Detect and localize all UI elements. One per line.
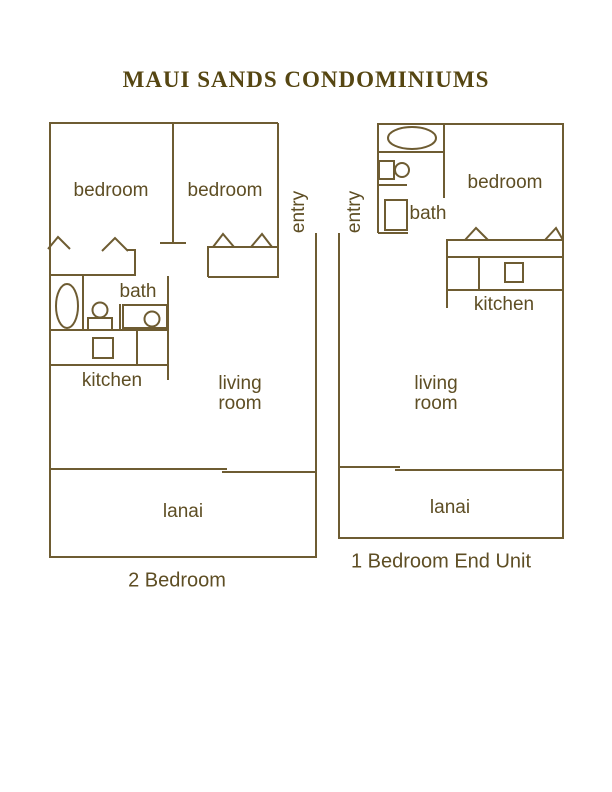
kitchen-sink-icon [93,338,113,358]
toilet-icon [88,303,112,331]
room-label-entry: entry [289,191,309,233]
bedroom-divider-wall [160,123,186,243]
bathtub-icon [56,284,78,328]
floorplan-page: MAUI SANDS CONDOMINIUMS [0,0,612,792]
room-label-lanai: lanai [163,502,203,522]
floorplan-drawing [0,0,612,792]
closet-door-icon [465,228,563,240]
room-label-living-room: living room [204,374,276,414]
room-label-kitchen: kitchen [474,295,534,315]
room-label-living-room: living room [400,374,472,414]
closet-left-walls [50,250,135,275]
kitchen-sink-icon [505,263,523,282]
unit-caption-2-bedroom: 2 Bedroom [128,570,226,593]
bathtub-icon [388,127,436,149]
closet-door-icon [48,237,128,251]
room-label-bedroom-left: bedroom [74,181,149,201]
room-label-bath: bath [120,282,157,302]
closet-right-walls [208,247,278,277]
unit-caption-1-bedroom-end-unit: 1 Bedroom End Unit [351,551,531,574]
room-label-bath: bath [410,204,447,224]
room-label-bedroom: bedroom [468,173,543,193]
sliding-door-icon [339,467,563,470]
sink-icon [123,305,167,328]
shower-icon [385,200,407,230]
room-label-kitchen: kitchen [82,371,142,391]
room-label-lanai: lanai [430,498,470,518]
closet-door-icon [213,234,272,247]
room-label-bedroom-right: bedroom [188,181,263,201]
toilet-icon [379,161,409,179]
kitchen-counter-walls [50,330,168,365]
room-label-entry: entry [345,191,365,233]
sliding-door-icon [50,469,316,472]
